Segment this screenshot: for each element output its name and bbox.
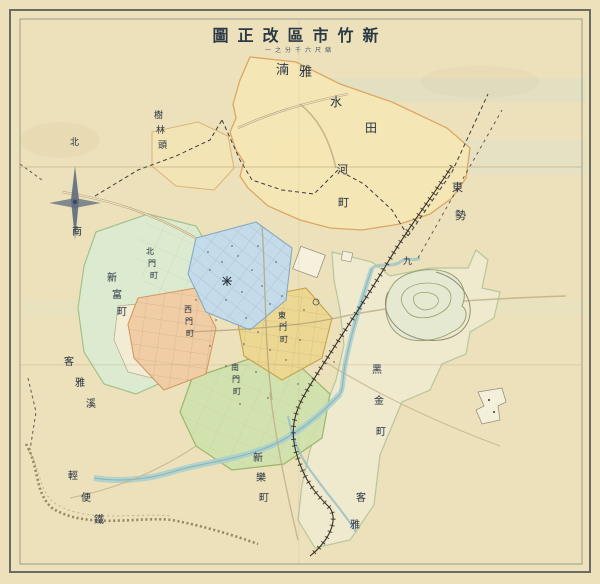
paper-crease bbox=[298, 19, 300, 564]
landmark-star-icon bbox=[222, 276, 232, 286]
paper-crease bbox=[20, 166, 582, 168]
paper-crease bbox=[20, 364, 582, 366]
small-parcel bbox=[341, 251, 353, 262]
map-canvas: 圖正改區市竹新 一之分千六尺縮 湳雅水田河町樹林頭東勢九新富町客雅溪黑金町新樂町… bbox=[0, 0, 600, 584]
cemetery-dot bbox=[493, 411, 495, 413]
map-title: 圖正改區市竹新 bbox=[0, 22, 600, 46]
cemetery-dot bbox=[488, 399, 490, 401]
map-subtitle: 一之分千六尺縮 bbox=[0, 45, 600, 54]
map-artwork bbox=[0, 0, 600, 584]
paper-stain bbox=[420, 66, 540, 98]
paper-stain bbox=[20, 122, 100, 158]
